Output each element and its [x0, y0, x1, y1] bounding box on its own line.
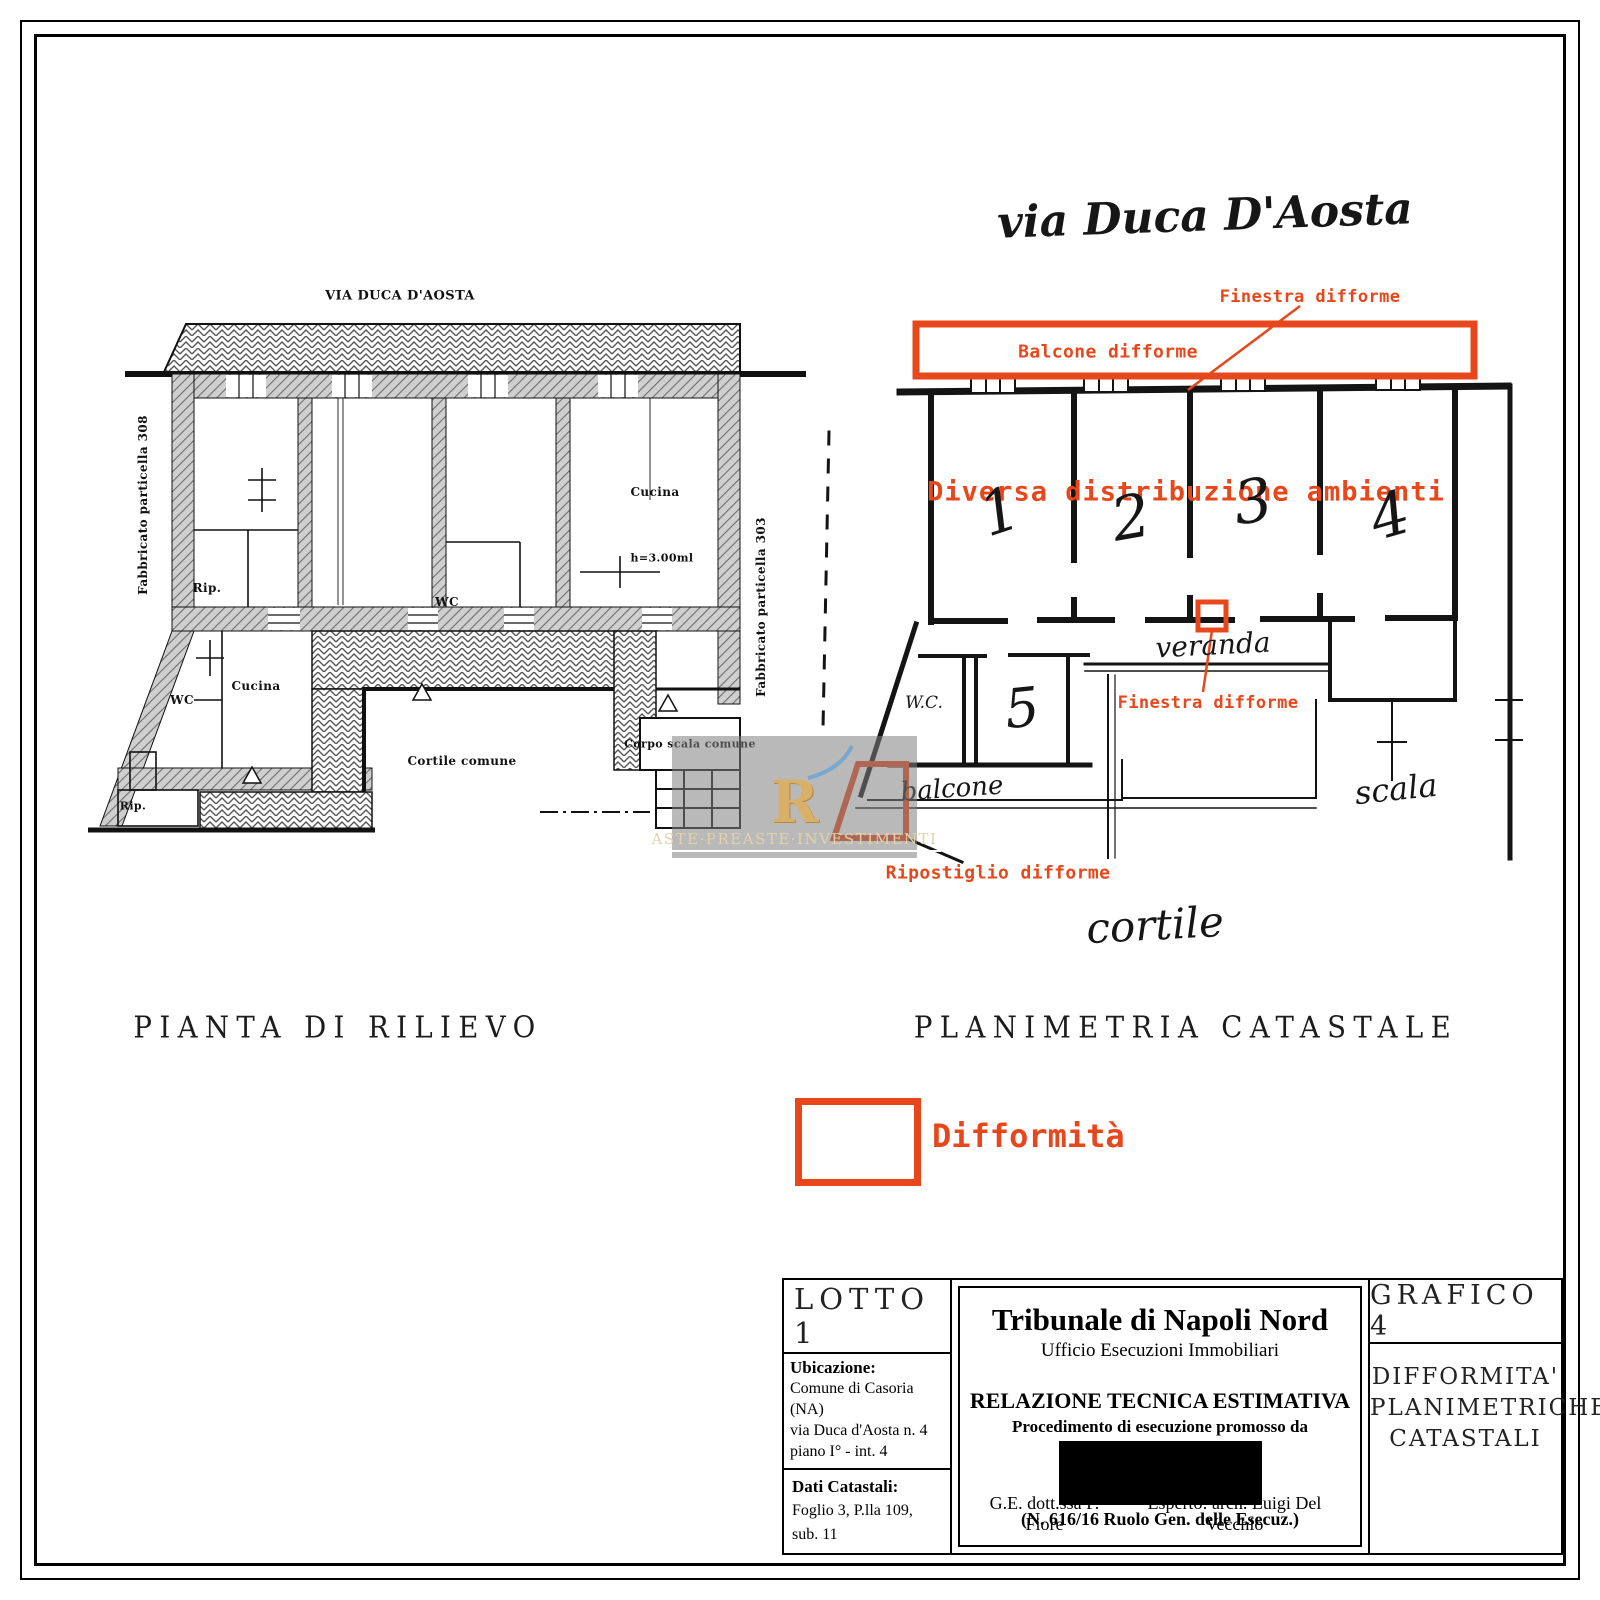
annotation-finestra-difforme-mid: Finestra difforme [1118, 693, 1299, 713]
ubicazione-heading: Ubicazione: [790, 1357, 944, 1378]
grafico-desc-line-1: DIFFORMITA' [1370, 1362, 1561, 1393]
court-name: Tribunale di Napoli Nord [960, 1302, 1360, 1338]
ubicazione-section: Ubicazione: Comune di Casoria (NA) via D… [784, 1354, 950, 1470]
watermark-logo: R [770, 774, 818, 830]
annotation-ripostiglio-difforme: Ripostiglio difforme [886, 863, 1111, 884]
watermark: R ASTE·PREASTE·INVESTIMENTI [672, 736, 917, 858]
grafico-desc-line-3: CATASTALI [1370, 1424, 1561, 1455]
room-number-5: 5 [1002, 675, 1043, 741]
annotation-finestra-difforme-top: Finestra difforme [1220, 287, 1401, 307]
room-label-rip-lower: Rip. [120, 800, 146, 813]
judge-name: G.E. dott.ssa F. Fiore [970, 1493, 1119, 1535]
report-title: RELAZIONE TECNICA ESTIMATIVA [960, 1388, 1360, 1414]
left-plan-title: PIANTA DI RILIEVO [133, 1011, 542, 1046]
title-block-center-inner: Tribunale di Napoli Nord Ufficio Esecuzi… [958, 1286, 1362, 1547]
drawing-sheet: VIA DUCA D'AOSTA Fabbricato particella 3… [0, 0, 1600, 1600]
room-label-cucina-upper: Cucina [630, 485, 679, 499]
watermark-text: ASTE·PREASTE·INVESTIMENTI [648, 830, 942, 852]
dati-catastali-section: Dati Catastali: Foglio 3, P.lla 109, sub… [784, 1470, 950, 1553]
ubicazione-line-1: Comune di Casoria (NA) [790, 1378, 944, 1420]
room-label-wc-lower: WC [170, 693, 194, 707]
left-plan-street-label: VIA DUCA D'AOSTA [325, 289, 475, 304]
room-label-height-note: h=3.00ml [630, 552, 693, 565]
legend-difformita-swatch [795, 1098, 921, 1186]
handwritten-veranda: veranda [1155, 626, 1272, 665]
title-block-right-column: GRAFICO 4 DIFFORMITA' PLANIMETRICHE CATA… [1368, 1278, 1563, 1555]
handwritten-wc: W.C. [905, 693, 943, 713]
room-label-cortile-comune: Cortile comune [407, 754, 516, 768]
title-block-center-column: Tribunale di Napoli Nord Ufficio Esecuzi… [950, 1278, 1370, 1555]
ubicazione-line-3: piano I° - int. 4 [790, 1441, 944, 1462]
grafico-label: GRAFICO 4 [1370, 1280, 1561, 1344]
title-block: LOTTO 1 Ubicazione: Comune di Casoria (N… [782, 1278, 1565, 1555]
dati-catastali-value: Foglio 3, P.lla 109, sub. 11 [792, 1499, 942, 1547]
left-plan-parcel-303-label: Fabbricato particella 303 [754, 517, 768, 697]
right-plan-title: PLANIMETRIA CATASTALE [914, 1011, 1458, 1046]
left-plan-parcel-308-label: Fabbricato particella 308 [136, 415, 150, 595]
expert-name: Esperto: arch. Luigi Del Vecchio [1119, 1493, 1350, 1535]
dati-catastali-heading: Dati Catastali: [792, 1475, 942, 1499]
room-label-cucina-lower: Cucina [231, 679, 280, 693]
procedure-line: Procedimento di esecuzione promosso da [960, 1417, 1360, 1437]
lotto-label: LOTTO 1 [784, 1280, 950, 1354]
ubicazione-line-2: via Duca d'Aosta n. 4 [790, 1420, 944, 1441]
room-label-rip-upper: Rip. [193, 581, 222, 595]
title-block-left-column: LOTTO 1 Ubicazione: Comune di Casoria (N… [782, 1278, 952, 1555]
handwritten-cortile: cortile [1085, 897, 1225, 953]
room-label-wc-upper: WC [435, 595, 459, 609]
legend-difformita-label: Difformità [932, 1117, 1125, 1155]
watermark-swoosh-icon [800, 742, 860, 782]
grafico-desc-line-2: PLANIMETRICHE [1370, 1393, 1561, 1424]
annotation-balcone-difforme: Balcone difforme [1018, 342, 1198, 363]
grafico-description: DIFFORMITA' PLANIMETRICHE CATASTALI [1370, 1344, 1561, 1553]
court-office: Ufficio Esecuzioni Immobiliari [960, 1340, 1360, 1362]
